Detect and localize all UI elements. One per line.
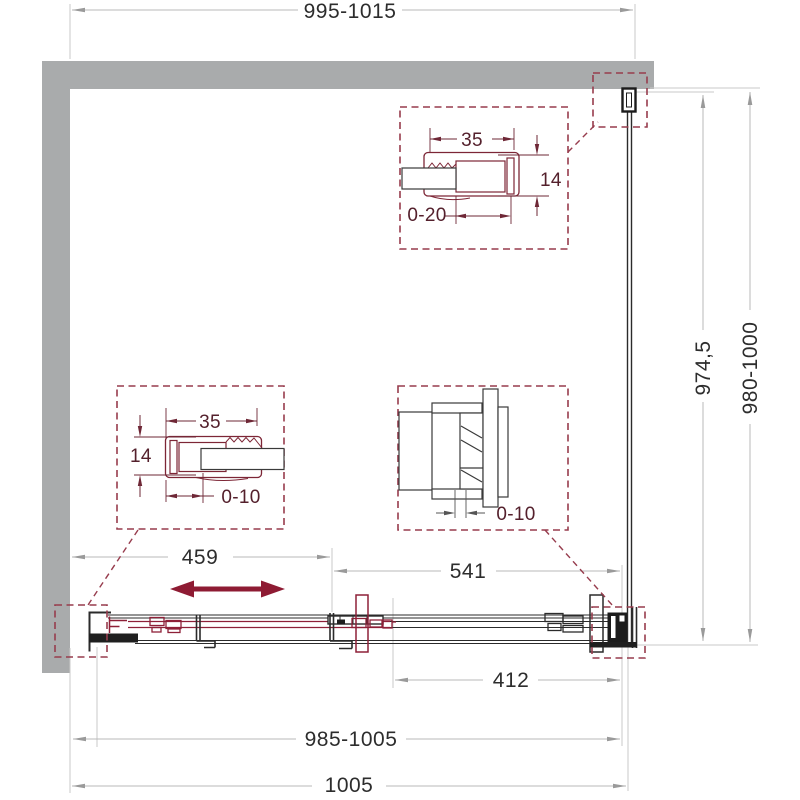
detail-left-width-label: 35 xyxy=(199,412,221,433)
dim-label-total-height: 980-1000 xyxy=(739,322,762,415)
dim-left-section: 459 xyxy=(72,546,330,569)
dim-label-left-section: 459 xyxy=(182,546,219,569)
dim-top-width: 995-1015 xyxy=(72,0,633,23)
dim-overall-width: 1005 xyxy=(72,774,626,797)
detail-box-top: 35 14 0-20 xyxy=(400,73,647,249)
dim-label-overall-width: 1005 xyxy=(325,774,374,797)
dim-bottom-width: 985-1005 xyxy=(73,728,620,751)
drawing-canvas: 995-1015 974,5 980-1000 459 541 412 xyxy=(0,0,800,800)
roller-carriage-left xyxy=(150,618,181,633)
glass-section-left xyxy=(201,449,284,470)
extension-lines xyxy=(70,4,760,793)
detail-top-height-label: 14 xyxy=(540,170,562,191)
glass-section xyxy=(402,168,456,189)
door-profile-left xyxy=(110,617,128,634)
dim-label-lower-right: 412 xyxy=(493,669,530,692)
dim-label-right-section: 541 xyxy=(450,560,487,583)
dim-label-top-width: 995-1015 xyxy=(304,0,397,23)
door-end-profile xyxy=(399,389,508,507)
technical-drawing: 995-1015 974,5 980-1000 459 541 412 xyxy=(0,0,800,800)
detail-top-adjust-label: 0-20 xyxy=(407,205,446,226)
wall xyxy=(42,61,654,673)
dim-lower-right: 412 xyxy=(395,669,620,692)
dim-right-section: 541 xyxy=(334,560,620,583)
detail-top-width-label: 35 xyxy=(461,130,483,151)
dim-glass-height: 974,5 xyxy=(692,95,715,641)
fixed-glass-panel xyxy=(623,89,636,646)
dim-label-bottom-width: 985-1005 xyxy=(305,728,398,751)
fixed-glass-section xyxy=(483,389,498,507)
detail-left-height-label: 14 xyxy=(130,446,152,467)
detail-right-adjust-label: 0-10 xyxy=(496,504,535,525)
door-rail-section xyxy=(89,595,637,652)
slide-direction-arrow-icon xyxy=(170,581,285,598)
detail-left-adjust-label: 0-10 xyxy=(221,487,260,508)
dim-label-glass-height: 974,5 xyxy=(692,340,715,395)
dim-total-height: 980-1000 xyxy=(739,92,762,642)
rail-bracket-left xyxy=(197,615,216,648)
